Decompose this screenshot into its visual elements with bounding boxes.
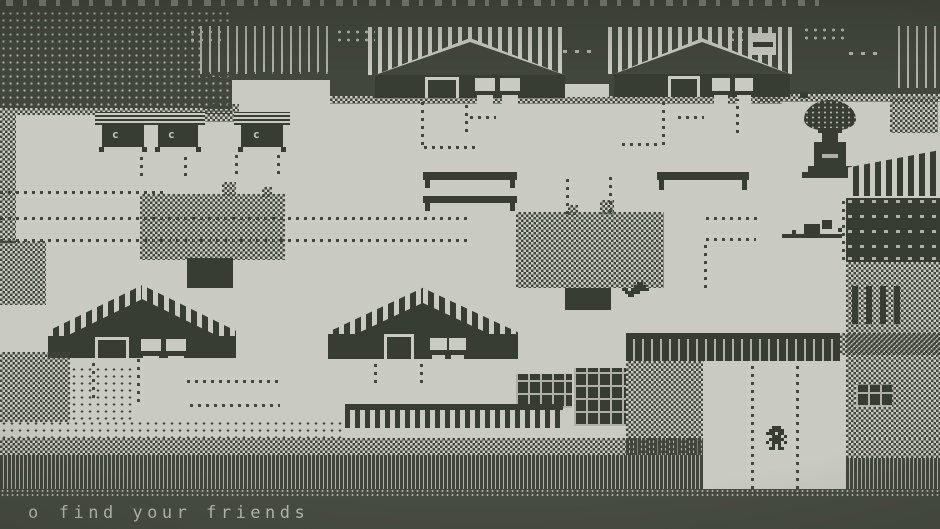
hud-bullet: o xyxy=(28,503,43,523)
house-body xyxy=(375,75,565,98)
tiny-tree-cluster xyxy=(188,28,228,44)
shore-dither xyxy=(846,458,940,489)
tree-pole-stripes xyxy=(898,26,940,88)
path-dots xyxy=(470,116,496,119)
player-sprite xyxy=(763,426,766,429)
house-body xyxy=(614,74,790,97)
stall-door-glyph: c xyxy=(112,129,119,140)
house-door xyxy=(95,337,129,358)
stall-hut: c xyxy=(95,112,151,152)
stall-hut: c xyxy=(151,112,205,152)
shore-dither xyxy=(846,438,940,460)
path-dots xyxy=(706,217,758,220)
tree-trunk xyxy=(565,288,611,310)
path-dots xyxy=(796,364,799,489)
path-dots xyxy=(736,99,739,133)
house-door xyxy=(384,334,414,359)
path-dots xyxy=(235,152,238,174)
stall-hut: c xyxy=(234,112,290,152)
path-dots xyxy=(421,99,424,145)
tiny-tree-cluster xyxy=(802,26,844,43)
path-dots xyxy=(662,99,665,145)
path-dots xyxy=(184,152,187,176)
boardwalk-fence xyxy=(345,404,563,428)
house-window xyxy=(500,78,520,91)
tree-trunk xyxy=(187,258,233,288)
path-dots xyxy=(622,143,662,146)
dither-block xyxy=(0,241,46,305)
crate-stack xyxy=(516,374,572,408)
bench xyxy=(423,196,517,203)
house-door xyxy=(425,77,459,98)
house-window xyxy=(475,78,495,91)
stall-door-glyph: c xyxy=(168,129,175,140)
pond-block xyxy=(846,198,940,262)
dither-edge xyxy=(565,76,609,84)
house-window xyxy=(712,78,730,91)
dash-marks xyxy=(563,50,597,53)
path-dots xyxy=(751,364,754,489)
house-window xyxy=(430,338,447,350)
fence-bars xyxy=(852,286,904,324)
clipped-text-row xyxy=(6,0,826,6)
dash-marks xyxy=(849,52,883,55)
path-dots xyxy=(190,404,280,407)
house-window xyxy=(735,78,753,91)
raft-debris xyxy=(780,220,846,250)
crate-stack xyxy=(856,385,892,407)
path-dots xyxy=(420,359,423,383)
shore-dither xyxy=(0,455,706,489)
hud-dither-row xyxy=(0,489,940,498)
house-window xyxy=(449,338,466,350)
house-window xyxy=(141,339,161,351)
hud-message: ofind your friends xyxy=(28,503,309,523)
hud-message-text: find your friends xyxy=(59,503,310,523)
path-dots xyxy=(465,99,468,132)
dither-column xyxy=(0,113,16,243)
path-dots xyxy=(678,116,704,119)
game-viewport[interactable]: c c c xyxy=(0,0,940,529)
path-dots xyxy=(374,359,377,383)
house-window xyxy=(166,339,186,351)
forest-texture xyxy=(0,10,232,108)
path-dots xyxy=(424,146,476,149)
tree-canopy xyxy=(516,212,664,288)
shore-dither xyxy=(0,438,706,455)
path-dots xyxy=(140,152,143,176)
path-dots xyxy=(704,241,707,288)
house-door xyxy=(668,76,700,97)
shore-dither xyxy=(70,366,132,420)
dither-block xyxy=(626,361,704,438)
path-dots xyxy=(706,238,756,241)
ground-gap xyxy=(565,84,609,97)
brick-wall xyxy=(626,333,840,361)
dither-edge xyxy=(200,72,332,80)
shore-dither xyxy=(0,352,70,422)
shore-dither xyxy=(0,420,345,438)
path-dots xyxy=(137,358,140,402)
player-path xyxy=(703,362,846,489)
dither-block xyxy=(890,97,938,133)
crow-sprite xyxy=(622,282,625,285)
roof-dormer-bar xyxy=(753,42,773,47)
house-body xyxy=(328,334,518,359)
bench xyxy=(423,172,517,180)
path-dots xyxy=(187,380,279,383)
path-dots xyxy=(277,152,280,174)
tree-canopy xyxy=(140,194,285,260)
crate-stack xyxy=(574,368,626,426)
stall-door-glyph: c xyxy=(253,129,260,140)
bench xyxy=(657,172,749,180)
